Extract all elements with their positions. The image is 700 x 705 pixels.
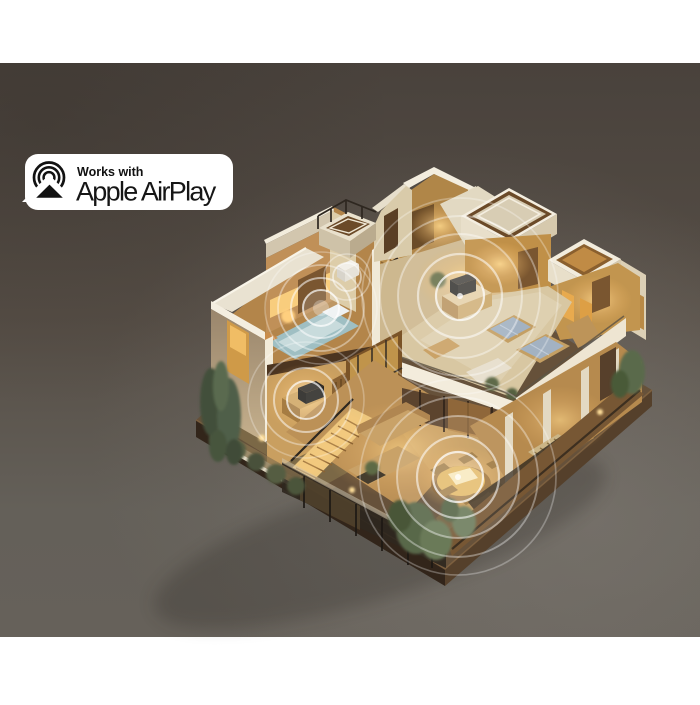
svg-text:Apple AirPlay: Apple AirPlay — [76, 177, 217, 207]
